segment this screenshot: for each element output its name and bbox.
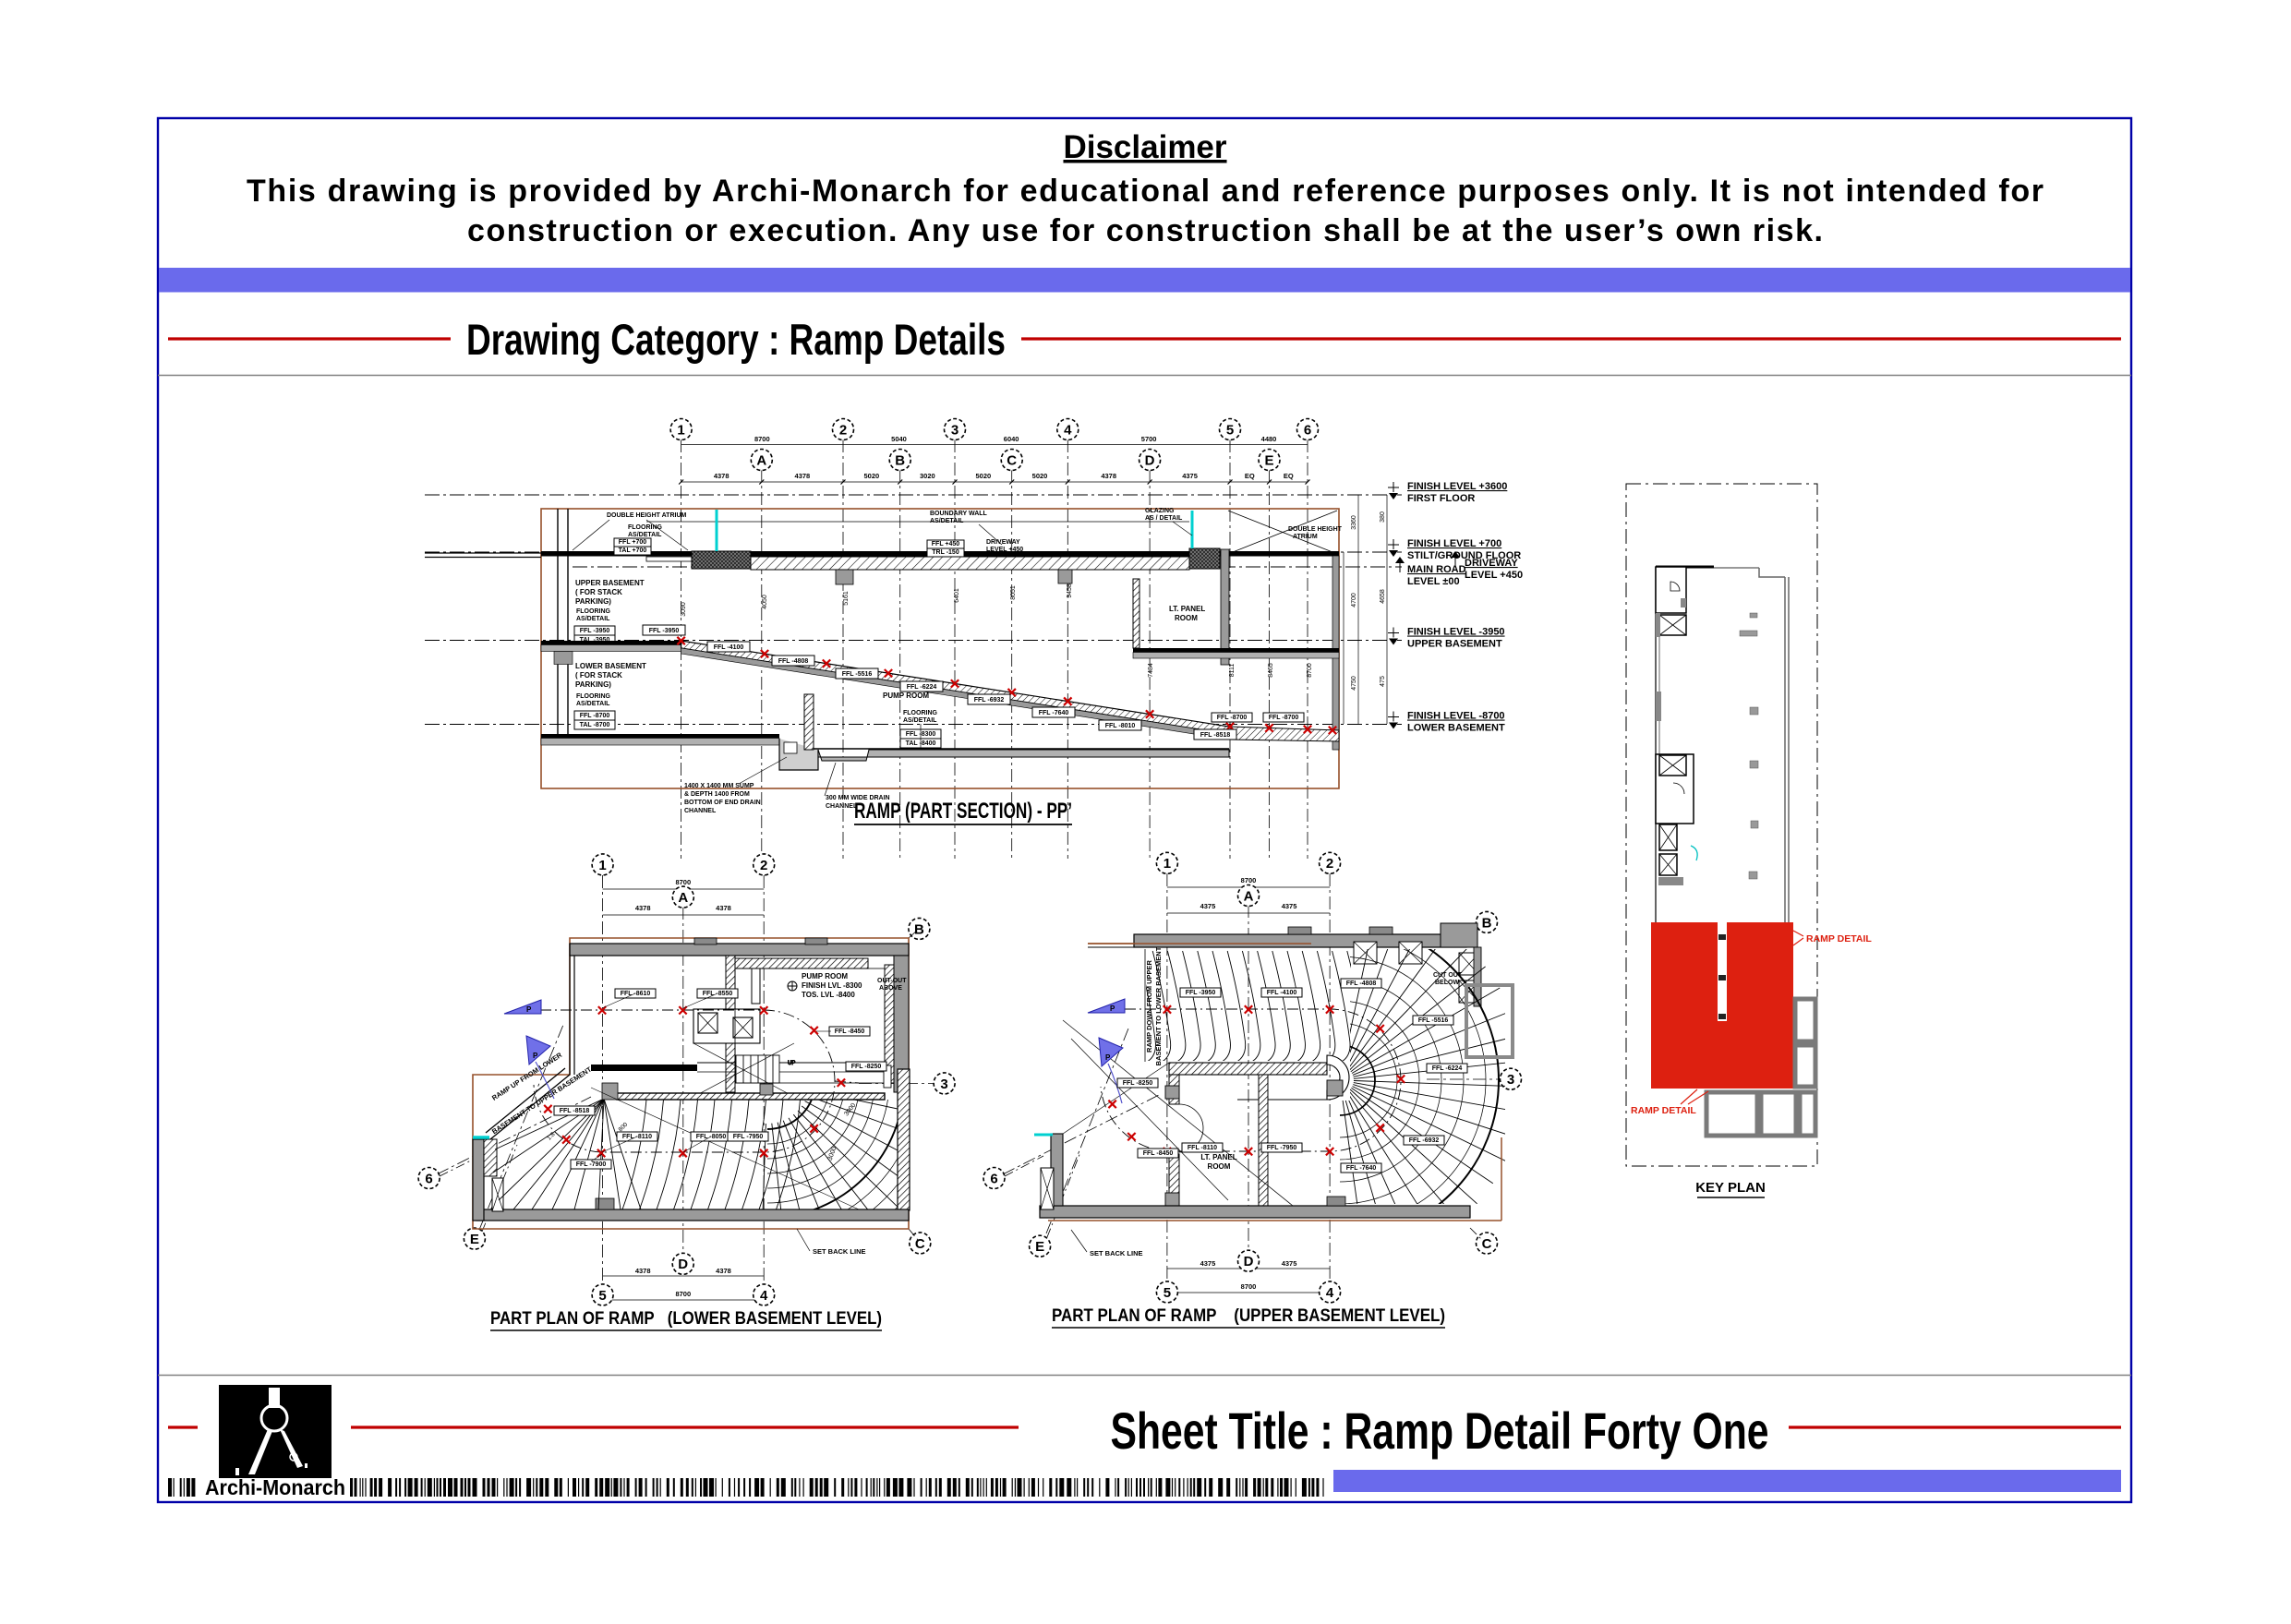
svg-text:FFL -7900: FFL -7900 — [576, 1161, 607, 1168]
svg-text:E: E — [1035, 1239, 1044, 1255]
svg-text:4480: 4480 — [1261, 435, 1277, 443]
svg-text:5: 5 — [1164, 1285, 1171, 1301]
svg-text:FFL -4100: FFL -4100 — [1267, 990, 1297, 996]
svg-text:DRIVEWAY: DRIVEWAY — [986, 539, 1020, 546]
svg-text:FFL -8700: FFL -8700 — [1217, 715, 1248, 721]
svg-text:FFL -6224: FFL -6224 — [1432, 1065, 1463, 1072]
svg-text:4700: 4700 — [1351, 593, 1357, 607]
svg-text:8700: 8700 — [1241, 876, 1257, 884]
svg-text:TRL -150: TRL -150 — [932, 549, 959, 556]
svg-text:3: 3 — [940, 1077, 947, 1092]
svg-text:2: 2 — [760, 858, 767, 873]
svg-text:RAMP DETAIL: RAMP DETAIL — [1806, 933, 1872, 944]
svg-text:UP: UP — [788, 1061, 795, 1066]
svg-text:FLOORING: FLOORING — [576, 608, 610, 615]
svg-text:4378: 4378 — [635, 1267, 651, 1275]
svg-text:E: E — [470, 1232, 479, 1247]
svg-text:FIRST FLOOR: FIRST FLOOR — [1407, 493, 1475, 504]
svg-text:4: 4 — [1326, 1285, 1334, 1301]
svg-text:GLAZING: GLAZING — [1145, 508, 1175, 514]
svg-text:6040: 6040 — [1004, 435, 1019, 443]
svg-text:FFL -6224: FFL -6224 — [907, 684, 937, 691]
svg-text:LEVEL +450: LEVEL +450 — [986, 547, 1023, 553]
svg-text:BOTTOM OF END DRAIN: BOTTOM OF END DRAIN — [684, 800, 761, 806]
svg-text:7484: 7484 — [1148, 663, 1154, 678]
svg-text:B: B — [914, 921, 924, 937]
svg-text:ATRIUM: ATRIUM — [1293, 534, 1318, 540]
svg-text:C: C — [1007, 452, 1017, 468]
svg-text:Disclaimer: Disclaimer — [1063, 129, 1226, 165]
svg-text:UPPER BASEMENT: UPPER BASEMENT — [1407, 639, 1502, 650]
svg-text:8700: 8700 — [675, 1290, 691, 1298]
svg-text:DOUBLE HEIGHT: DOUBLE HEIGHT — [1288, 526, 1343, 533]
svg-text:FFL -7950: FFL -7950 — [733, 1134, 764, 1140]
svg-text:TAL -8700: TAL -8700 — [580, 722, 610, 728]
svg-text:EQ: EQ — [1245, 472, 1255, 480]
svg-text:P: P — [1110, 1004, 1115, 1013]
svg-text:AS/DETAIL: AS/DETAIL — [576, 701, 610, 707]
svg-text:5700: 5700 — [1141, 435, 1157, 443]
svg-text:4050: 4050 — [762, 595, 768, 609]
svg-text:4375: 4375 — [1282, 902, 1297, 910]
svg-text:B: B — [1482, 915, 1492, 931]
svg-text:8700: 8700 — [675, 878, 691, 886]
svg-text:6: 6 — [990, 1171, 997, 1186]
svg-text:D: D — [1244, 1254, 1254, 1269]
svg-text:FINISH LEVEL +3600: FINISH LEVEL +3600 — [1407, 481, 1507, 492]
svg-text:FFL -7950: FFL -7950 — [1267, 1145, 1297, 1151]
svg-text:4375: 4375 — [1182, 472, 1198, 480]
svg-text:A: A — [678, 890, 688, 906]
svg-text:LEVEL +450: LEVEL +450 — [1465, 570, 1523, 581]
svg-text:1: 1 — [598, 858, 606, 873]
svg-text:475: 475 — [1380, 676, 1386, 687]
svg-text:FFL -8250: FFL -8250 — [1123, 1080, 1153, 1087]
svg-text:RAMP (PART SECTION) - PP’: RAMP (PART SECTION) - PP’ — [854, 799, 1072, 824]
svg-text:BASEMENT TO LOWER BASEMENT: BASEMENT TO LOWER BASEMENT — [1154, 946, 1163, 1065]
svg-text:FLOORING: FLOORING — [903, 710, 937, 716]
svg-text:C: C — [915, 1236, 925, 1252]
svg-text:LT. PANEL: LT. PANEL — [1200, 1153, 1236, 1161]
svg-text:This drawing is provided by Ar: This drawing is provided by Archi-Monarc… — [247, 174, 2044, 209]
svg-text:AS/DETAIL: AS/DETAIL — [576, 616, 610, 622]
svg-text:Drawing Category : Ramp Detail: Drawing Category : Ramp Details — [466, 315, 1006, 364]
svg-text:D: D — [1145, 452, 1155, 468]
svg-text:SET BACK LINE: SET BACK LINE — [813, 1247, 866, 1256]
svg-text:FFL -3950: FFL -3950 — [580, 628, 610, 634]
svg-text:8051: 8051 — [1010, 585, 1017, 600]
svg-text:FFL -8700: FFL -8700 — [1269, 715, 1299, 721]
svg-text:FFL -5516: FFL -5516 — [1418, 1017, 1449, 1024]
svg-text:PART PLAN OF RAMP (LOWER BAS: PART PLAN OF RAMP (LOWER BASEMENT LEVEL) — [490, 1309, 882, 1329]
svg-text:BOUNDARY WALL: BOUNDARY WALL — [930, 511, 988, 517]
svg-text:FINISH LVL -8300: FINISH LVL -8300 — [802, 981, 862, 990]
svg-text:FFL -8450: FFL -8450 — [835, 1029, 865, 1035]
svg-text:6: 6 — [1304, 422, 1311, 438]
svg-text:FFL -7640: FFL -7640 — [1346, 1165, 1377, 1172]
svg-text:380: 380 — [1380, 511, 1386, 523]
svg-text:4: 4 — [760, 1288, 768, 1304]
svg-text:KEY PLAN: KEY PLAN — [1695, 1180, 1766, 1196]
svg-text:TOS. LVL -8400: TOS. LVL -8400 — [802, 991, 855, 999]
svg-text:UPPER BASEMENT: UPPER BASEMENT — [575, 579, 645, 587]
svg-text:3: 3 — [951, 422, 959, 438]
svg-text:FFL -4100: FFL -4100 — [714, 644, 744, 651]
svg-text:FFL -6932: FFL -6932 — [974, 697, 1005, 704]
svg-text:5161: 5161 — [843, 591, 850, 606]
svg-text:E: E — [1264, 452, 1273, 468]
svg-text:OUT-OUT: OUT-OUT — [877, 978, 907, 984]
svg-text:LOWER BASEMENT: LOWER BASEMENT — [1407, 723, 1505, 734]
svg-text:FFL -8250: FFL -8250 — [851, 1064, 882, 1070]
svg-text:TAL +700: TAL +700 — [619, 547, 647, 554]
svg-text:1: 1 — [677, 422, 684, 438]
svg-text:DRIVEWAY: DRIVEWAY — [1465, 558, 1518, 569]
svg-text:FFL -8110: FFL -8110 — [622, 1134, 652, 1140]
svg-text:4375: 4375 — [1282, 1259, 1297, 1268]
svg-text:FFL -7640: FFL -7640 — [1039, 710, 1069, 716]
svg-text:4378: 4378 — [714, 472, 730, 480]
svg-text:4375: 4375 — [1200, 1259, 1216, 1268]
svg-text:D: D — [678, 1257, 688, 1272]
svg-text:& DEPTH 1400 FROM: & DEPTH 1400 FROM — [684, 791, 750, 798]
svg-text:8700: 8700 — [1241, 1282, 1257, 1291]
svg-text:A: A — [756, 452, 766, 468]
svg-text:4658: 4658 — [1380, 589, 1386, 604]
svg-text:3090: 3090 — [681, 602, 687, 617]
svg-text:4378: 4378 — [1101, 472, 1116, 480]
svg-text:RAMP DETAIL: RAMP DETAIL — [1631, 1105, 1696, 1116]
svg-text:EQ: EQ — [1284, 472, 1294, 480]
svg-text:1400 X 1400 MM SUMP: 1400 X 1400 MM SUMP — [684, 783, 754, 789]
svg-text:FFL -8110: FFL -8110 — [1188, 1145, 1217, 1151]
svg-text:8700: 8700 — [754, 435, 770, 443]
svg-text:8700: 8700 — [1307, 663, 1313, 678]
svg-text:FLOORING: FLOORING — [576, 693, 610, 700]
svg-text:DOUBLE HEIGHT ATRIUM: DOUBLE HEIGHT ATRIUM — [607, 512, 686, 519]
svg-text:( FOR STACK: ( FOR STACK — [575, 671, 622, 680]
svg-text:FFL -8610: FFL -8610 — [621, 991, 651, 997]
svg-text:ROOM: ROOM — [1208, 1162, 1231, 1171]
svg-text:BELOW: BELOW — [1435, 980, 1459, 986]
svg-text:FFL -6932: FFL -6932 — [1409, 1137, 1440, 1144]
svg-text:MAIN ROAD: MAIN ROAD — [1407, 564, 1466, 575]
svg-text:2: 2 — [839, 422, 847, 438]
svg-text:FFL -8700: FFL -8700 — [580, 713, 610, 719]
svg-text:SET BACK LINE: SET BACK LINE — [1090, 1249, 1143, 1257]
svg-text:PUMP ROOM: PUMP ROOM — [802, 972, 848, 980]
svg-text:8111: 8111 — [1229, 664, 1236, 678]
svg-text:4375: 4375 — [1200, 902, 1216, 910]
svg-text:FFL -4808: FFL -4808 — [778, 658, 809, 665]
svg-text:Sheet Title : Ramp Detail Fort: Sheet Title : Ramp Detail Forty One — [1111, 1401, 1769, 1460]
svg-text:4378: 4378 — [635, 904, 651, 912]
svg-text:4378: 4378 — [716, 904, 731, 912]
svg-text:LEVEL ±00: LEVEL ±00 — [1407, 576, 1460, 587]
svg-text:CHANNEL: CHANNEL — [684, 808, 717, 814]
svg-text:P: P — [526, 1005, 532, 1014]
svg-text:AS/DETAIL: AS/DETAIL — [628, 532, 662, 538]
svg-text:PARKING): PARKING) — [575, 597, 611, 606]
svg-text:FFL +700: FFL +700 — [619, 539, 647, 546]
svg-text:PARKING): PARKING) — [575, 680, 611, 689]
svg-text:4750: 4750 — [1351, 676, 1357, 691]
svg-text:4: 4 — [1064, 422, 1072, 438]
svg-text:3360: 3360 — [1351, 515, 1357, 530]
svg-text:FFL -8550: FFL -8550 — [703, 991, 733, 997]
svg-text:4378: 4378 — [795, 472, 811, 480]
svg-text:FFL -4808: FFL -4808 — [1346, 980, 1377, 987]
svg-text:P: P — [533, 1052, 538, 1060]
svg-text:B: B — [895, 452, 905, 468]
svg-text:C: C — [1482, 1236, 1492, 1252]
svg-text:AS/DETAIL: AS/DETAIL — [930, 518, 964, 524]
svg-text:8465: 8465 — [1268, 663, 1274, 678]
svg-text:CHANNEL: CHANNEL — [826, 803, 858, 810]
svg-text:5040: 5040 — [891, 435, 907, 443]
svg-text:FINISH LEVEL -8700: FINISH LEVEL -8700 — [1407, 711, 1505, 722]
svg-text:ABOVE: ABOVE — [879, 985, 902, 992]
svg-text:5: 5 — [598, 1288, 606, 1304]
svg-text:FFL -8010: FFL -8010 — [1105, 723, 1136, 729]
svg-text:P: P — [1105, 1053, 1111, 1062]
svg-text:6401: 6401 — [954, 588, 960, 603]
svg-text:5: 5 — [1226, 422, 1234, 438]
svg-text:6: 6 — [425, 1171, 432, 1186]
svg-text:3: 3 — [1507, 1072, 1514, 1088]
svg-text:5020: 5020 — [864, 472, 880, 480]
svg-text:Archi-Monarch: Archi-Monarch — [205, 1475, 345, 1499]
svg-text:RAMP DOWN FROM UPPER: RAMP DOWN FROM UPPER — [1145, 959, 1153, 1052]
svg-text:FFL -8450: FFL -8450 — [1143, 1150, 1174, 1157]
svg-text:FINISH LEVEL -3950: FINISH LEVEL -3950 — [1407, 627, 1505, 638]
svg-text:FINISH LEVEL +700: FINISH LEVEL +700 — [1407, 538, 1501, 549]
svg-text:5020: 5020 — [1032, 472, 1048, 480]
svg-text:FFL -8518: FFL -8518 — [560, 1108, 590, 1114]
svg-text:PUMP ROOM: PUMP ROOM — [883, 692, 929, 700]
svg-text:FFL +450: FFL +450 — [932, 541, 960, 547]
svg-text:FFL -3950: FFL -3950 — [649, 628, 680, 634]
svg-text:3020: 3020 — [920, 472, 935, 480]
svg-text:FFL -8518: FFL -8518 — [1200, 732, 1231, 739]
svg-text:4378: 4378 — [716, 1267, 731, 1275]
svg-text:2: 2 — [1326, 856, 1333, 872]
svg-text:FFL -8050: FFL -8050 — [696, 1134, 727, 1140]
svg-text:LT. PANEL: LT. PANEL — [1169, 605, 1205, 613]
svg-text:PART PLAN OF RAMP (UPPER BA: PART PLAN OF RAMP (UPPER BASEMENT LEVEL) — [1052, 1306, 1445, 1326]
svg-text:FFL -3950: FFL -3950 — [1186, 990, 1216, 996]
svg-text:A: A — [1244, 888, 1254, 904]
svg-text:construction or execution. Any: construction or execution. Any use for c… — [467, 213, 1823, 248]
svg-text:9458: 9458 — [1067, 583, 1073, 598]
svg-text:LOWER BASEMENT: LOWER BASEMENT — [575, 662, 646, 670]
svg-text:FLOORING: FLOORING — [628, 524, 662, 531]
svg-text:( FOR STACK: ( FOR STACK — [575, 588, 622, 596]
svg-text:FFL -5516: FFL -5516 — [842, 671, 873, 678]
svg-text:AS / DETAIL: AS / DETAIL — [1145, 515, 1183, 522]
svg-text:ROOM: ROOM — [1175, 614, 1198, 622]
svg-text:5020: 5020 — [976, 472, 992, 480]
svg-text:1: 1 — [1164, 856, 1171, 872]
svg-text:AS/DETAIL: AS/DETAIL — [903, 717, 937, 724]
